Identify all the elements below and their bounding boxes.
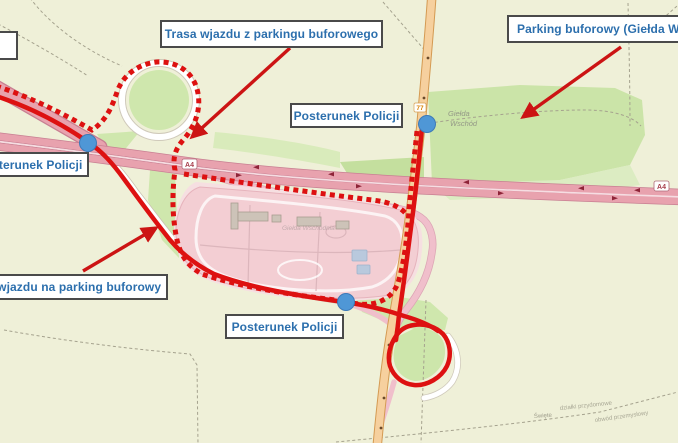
label-entry-route: Trasa wjazdu na parking buforowy — [0, 274, 168, 300]
police-post-marker — [80, 135, 97, 152]
a4-shield: A4 — [654, 181, 669, 191]
label-entry-route-text: Trasa wjazdu na parking buforowy — [0, 280, 161, 294]
label-police-post-left: Posterunek Policji — [0, 152, 89, 177]
svg-text:77: 77 — [416, 105, 424, 112]
label-police-post-bottom: Posterunek Policji — [225, 314, 344, 339]
svg-text:A4: A4 — [657, 184, 666, 191]
area-label-gielda: Giełda — [448, 109, 470, 118]
label-buffer-parking-text: Parking buforowy (Giełda Wsc — [517, 22, 678, 36]
label-exit-route: Trasa wjazdu z parkingu buforowego — [160, 20, 383, 48]
map-annotation-image: Giełda Wschodnia A4 A4 77 Giełda Wschód … — [0, 0, 678, 443]
label-exit-route-text: Trasa wjazdu z parkingu buforowego — [165, 27, 378, 41]
svg-text:A4: A4 — [185, 162, 194, 169]
police-post-marker — [419, 116, 436, 133]
map-canvas: Giełda Wschodnia A4 A4 77 Giełda Wschód … — [0, 0, 678, 443]
parking-faint-label: Giełda Wschodnia — [282, 225, 335, 232]
label-buffer-parking: Parking buforowy (Giełda Wsc — [507, 15, 678, 43]
road-77-label: 77 — [414, 103, 426, 112]
label-police-post-mid: Posterunek Policji — [290, 103, 403, 128]
label-police-post-left-text: Posterunek Policji — [0, 158, 82, 172]
label-police-post-mid-text: Posterunek Policji — [294, 109, 400, 123]
label-partial-box — [0, 31, 18, 60]
area-label-wschod: Wschód — [450, 119, 478, 128]
police-post-marker — [338, 294, 355, 311]
a4-shield: A4 — [182, 159, 197, 169]
label-police-post-bottom-text: Posterunek Policji — [232, 320, 338, 334]
